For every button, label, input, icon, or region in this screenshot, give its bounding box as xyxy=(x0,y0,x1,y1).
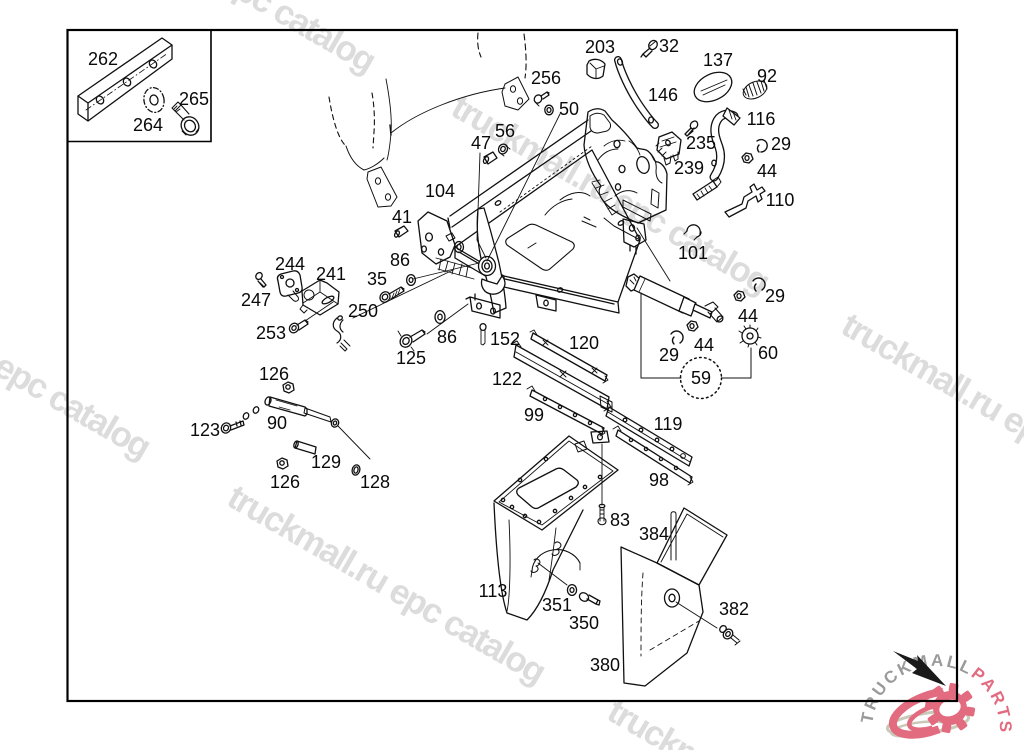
svg-text:101: 101 xyxy=(678,243,708,263)
svg-text:60: 60 xyxy=(758,343,778,363)
svg-text:128: 128 xyxy=(360,472,390,492)
svg-text:56: 56 xyxy=(495,121,515,141)
svg-text:59: 59 xyxy=(691,368,711,388)
svg-text:235: 235 xyxy=(686,133,716,153)
svg-text:110: 110 xyxy=(766,190,795,210)
svg-text:351: 351 xyxy=(542,595,572,615)
svg-text:104: 104 xyxy=(425,181,455,201)
svg-text:90: 90 xyxy=(267,413,287,433)
svg-text:126: 126 xyxy=(259,364,289,384)
svg-text:32: 32 xyxy=(659,36,679,56)
svg-text:86: 86 xyxy=(437,327,457,347)
svg-text:265: 265 xyxy=(179,89,209,109)
svg-text:129: 129 xyxy=(311,452,341,472)
svg-text:244: 244 xyxy=(275,254,305,274)
svg-text:122: 122 xyxy=(492,369,522,389)
svg-text:262: 262 xyxy=(88,49,118,69)
svg-text:92: 92 xyxy=(757,66,777,86)
svg-text:44: 44 xyxy=(757,161,777,181)
svg-text:126: 126 xyxy=(270,472,300,492)
svg-text:250: 250 xyxy=(348,301,378,321)
svg-text:35: 35 xyxy=(367,269,387,289)
svg-text:98: 98 xyxy=(649,470,669,490)
svg-text:256: 256 xyxy=(531,68,561,88)
svg-text:125: 125 xyxy=(396,348,426,368)
svg-text:120: 120 xyxy=(569,333,599,353)
svg-text:29: 29 xyxy=(659,345,679,365)
svg-text:203: 203 xyxy=(585,37,615,57)
svg-text:29: 29 xyxy=(765,286,785,306)
svg-text:350: 350 xyxy=(569,613,599,633)
svg-text:239: 239 xyxy=(674,158,704,178)
svg-text:380: 380 xyxy=(590,655,620,675)
svg-text:99: 99 xyxy=(524,405,544,425)
svg-text:44: 44 xyxy=(738,306,758,326)
svg-text:241: 241 xyxy=(316,264,346,284)
svg-text:384: 384 xyxy=(639,524,669,544)
svg-text:86: 86 xyxy=(390,250,410,270)
svg-text:264: 264 xyxy=(133,115,163,135)
svg-text:29: 29 xyxy=(771,134,791,154)
svg-text:44: 44 xyxy=(694,335,714,355)
svg-text:47: 47 xyxy=(471,133,491,153)
svg-text:137: 137 xyxy=(703,50,733,70)
svg-text:116: 116 xyxy=(747,109,776,129)
svg-text:253: 253 xyxy=(256,323,286,343)
svg-text:247: 247 xyxy=(241,290,271,310)
svg-text:119: 119 xyxy=(654,414,683,434)
svg-text:123: 123 xyxy=(190,420,220,440)
svg-text:113: 113 xyxy=(479,581,508,601)
svg-text:50: 50 xyxy=(559,99,579,119)
svg-text:41: 41 xyxy=(392,207,412,227)
svg-text:382: 382 xyxy=(719,599,749,619)
svg-text:146: 146 xyxy=(648,85,678,105)
svg-text:152: 152 xyxy=(490,329,520,349)
svg-text:83: 83 xyxy=(610,510,630,530)
